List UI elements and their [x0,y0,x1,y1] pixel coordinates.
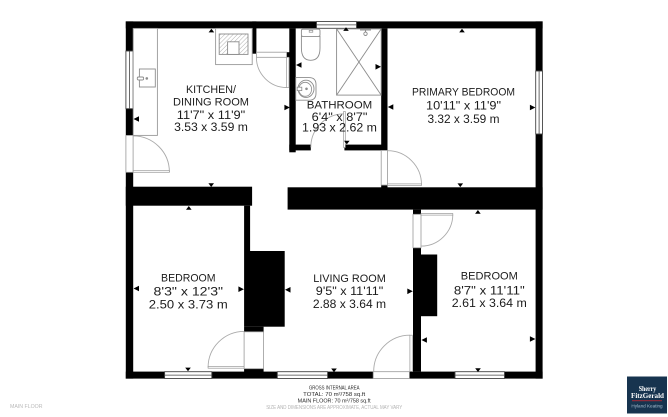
svg-text:FitzGerald: FitzGerald [631,391,665,400]
svg-text:Hyland Keating: Hyland Keating [631,403,663,408]
